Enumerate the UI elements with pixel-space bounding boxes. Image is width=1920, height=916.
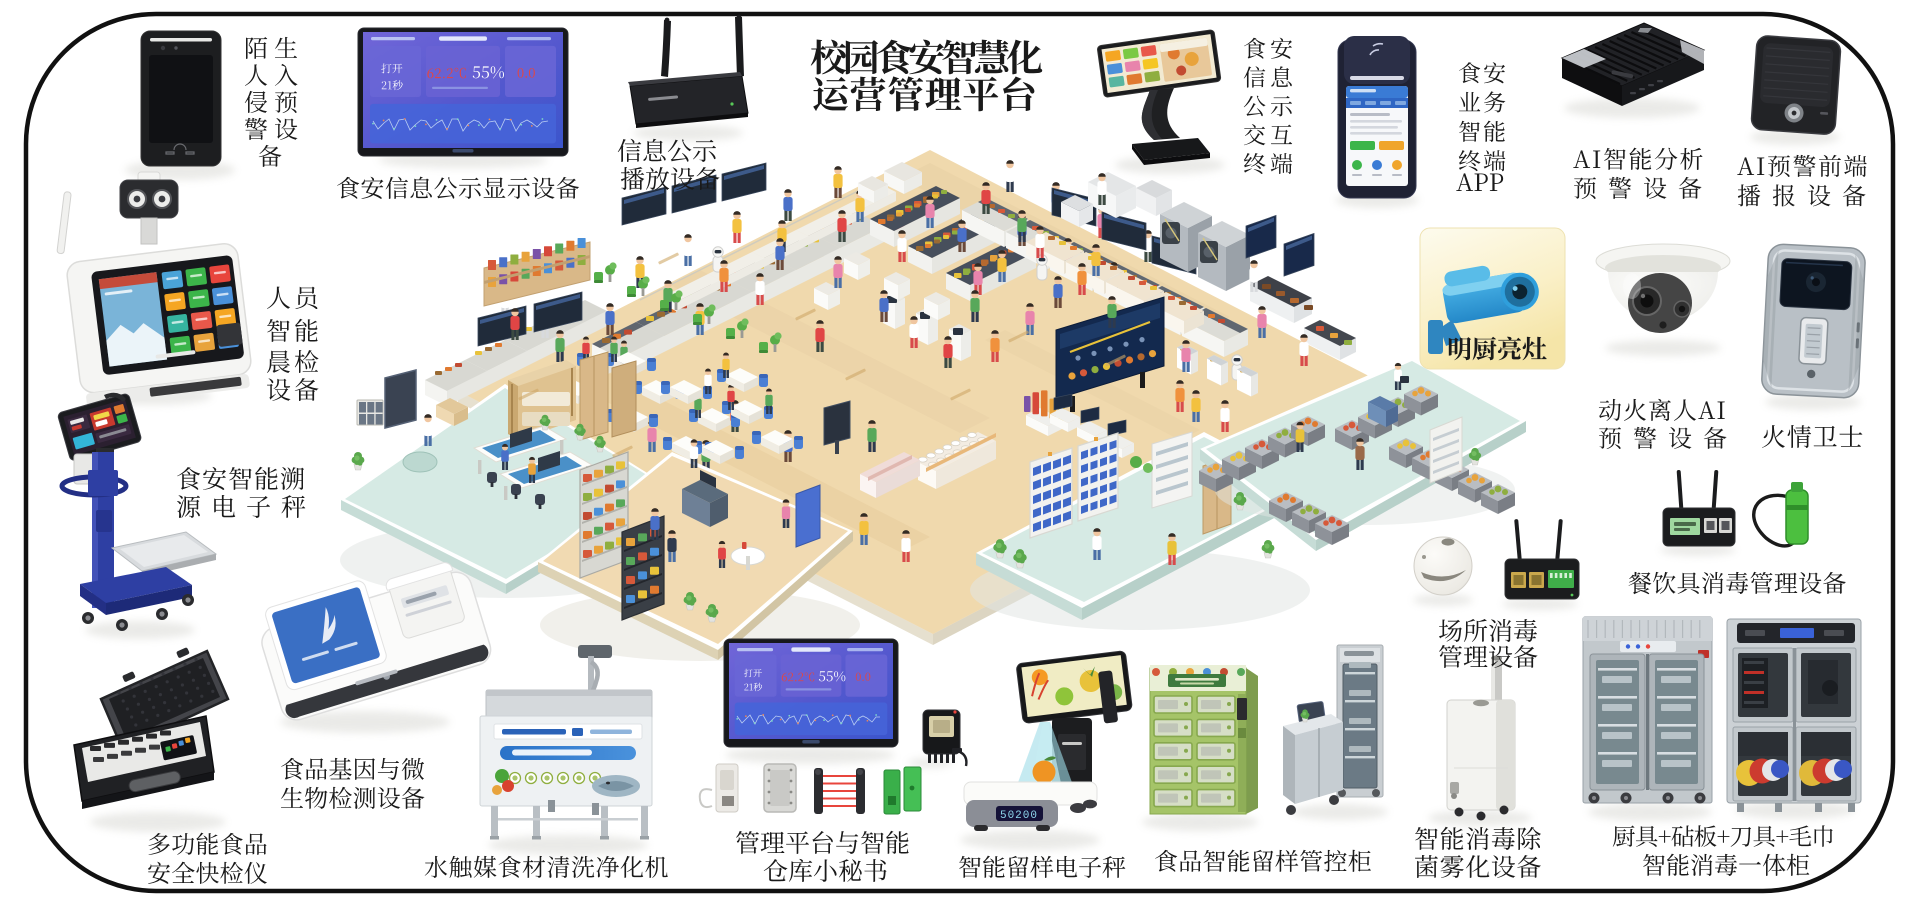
svg-text:50200: 50200 — [1000, 810, 1038, 822]
